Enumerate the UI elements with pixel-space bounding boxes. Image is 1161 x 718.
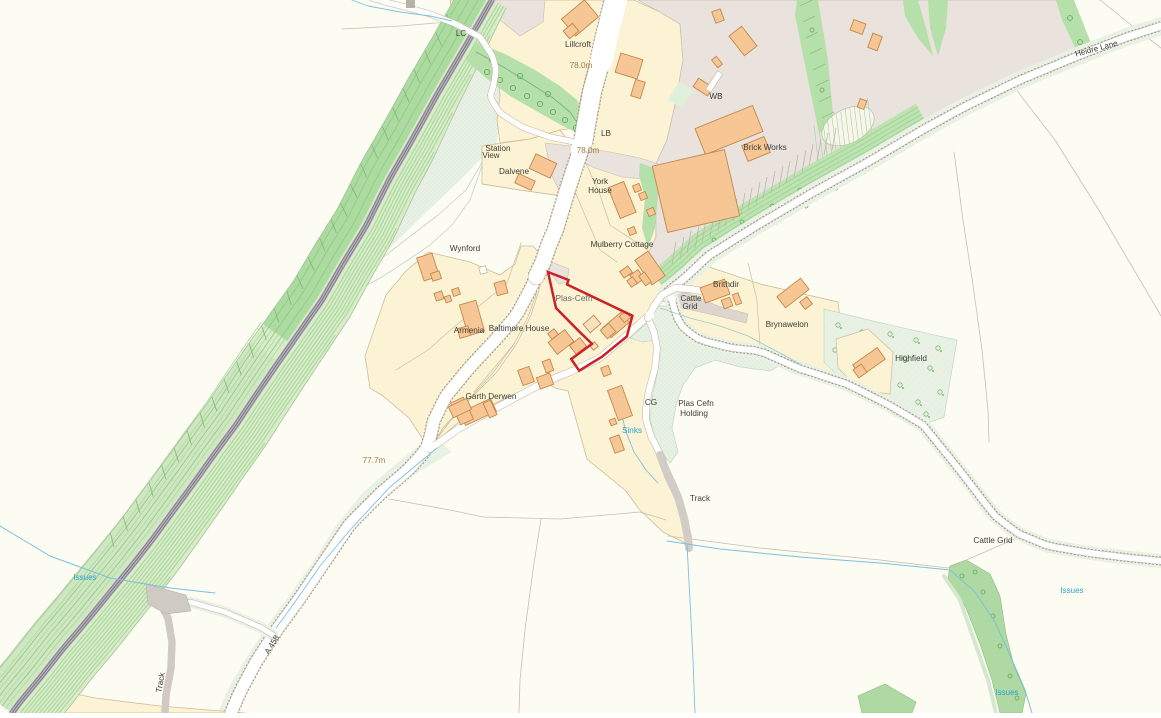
svg-text:WB: WB [709,92,723,101]
svg-text:York: York [592,177,609,186]
svg-text:Plas Cefn: Plas Cefn [678,399,714,408]
svg-text:Brick Works: Brick Works [743,143,787,152]
svg-text:Baltimore House: Baltimore House [489,324,550,333]
svg-text:LB: LB [601,129,612,138]
svg-text:View: View [482,151,499,160]
svg-text:Dalvene: Dalvene [499,167,529,176]
svg-text:Armenia: Armenia [454,326,485,335]
svg-text:Garth Derwen: Garth Derwen [466,392,517,401]
svg-text:Cattle Grid: Cattle Grid [973,536,1013,545]
svg-text:Wynford: Wynford [450,244,481,253]
svg-text:LC: LC [456,29,466,38]
svg-text:House: House [588,186,612,195]
svg-text:Mulberry Cottage: Mulberry Cottage [591,240,654,249]
svg-text:Issues: Issues [1060,586,1083,595]
svg-text:Brithdir: Brithdir [713,280,739,289]
svg-text:Issues: Issues [73,573,96,582]
svg-text:CG: CG [645,398,657,407]
svg-text:Sinks: Sinks [622,426,642,435]
svg-text:Issues: Issues [995,688,1018,697]
svg-text:78.0m: 78.0m [570,61,593,70]
svg-text:Lillcroft: Lillcroft [565,40,592,49]
svg-text:Track: Track [690,494,711,503]
svg-text:Highfield: Highfield [895,354,927,363]
svg-text:Brynawelon: Brynawelon [766,320,809,329]
svg-text:78.0m: 78.0m [577,146,600,155]
svg-text:Plas-Cefn: Plas-Cefn [555,293,593,303]
svg-text:Holding: Holding [680,409,708,418]
svg-text:77.7m: 77.7m [363,456,386,465]
svg-text:Grid: Grid [682,302,697,311]
